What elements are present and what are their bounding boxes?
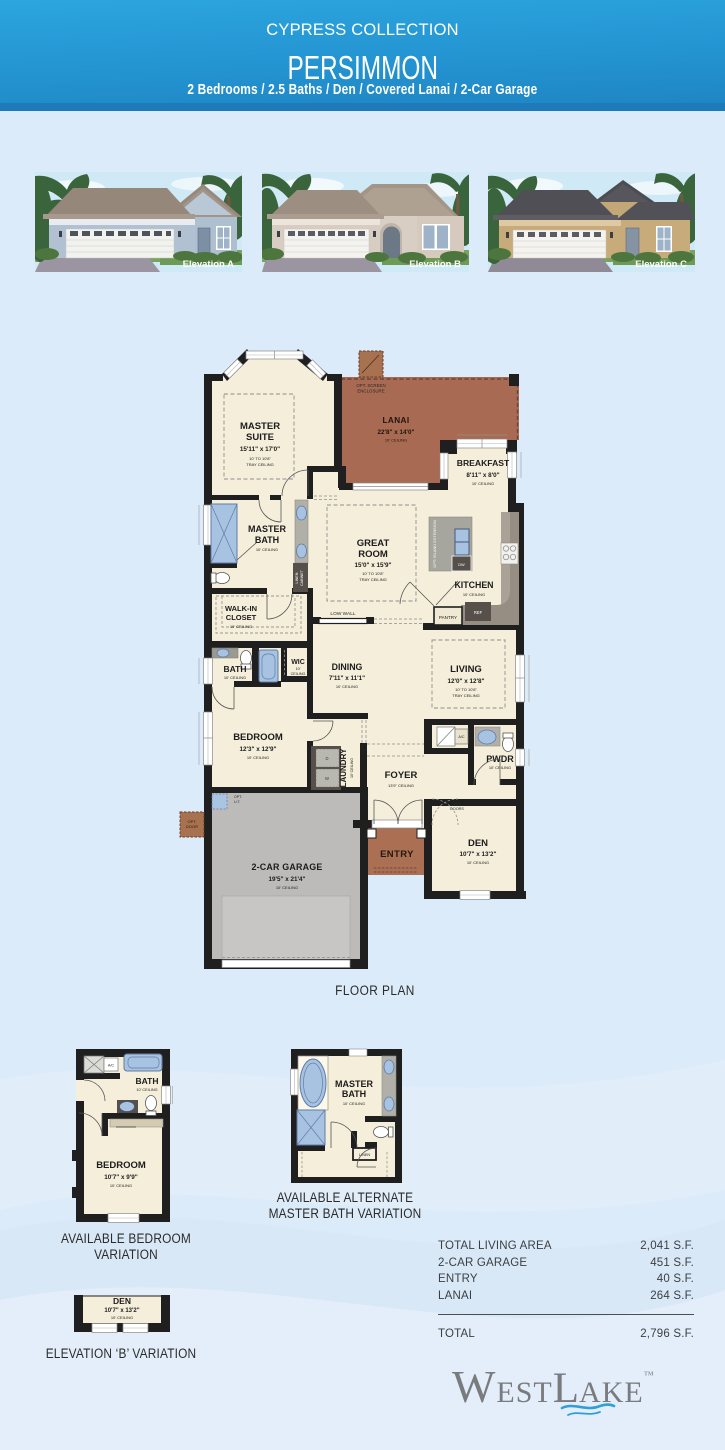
svg-text:MASTER: MASTER bbox=[335, 1079, 374, 1089]
svg-text:W: W bbox=[325, 776, 329, 781]
svg-text:Elevation C: Elevation C bbox=[635, 259, 687, 270]
svg-text:19'5" x 21'4": 19'5" x 21'4" bbox=[269, 876, 306, 883]
svg-text:U.T.: U.T. bbox=[234, 800, 241, 804]
svg-text:WIC: WIC bbox=[291, 659, 305, 666]
svg-text:2-CAR GARAGE: 2-CAR GARAGE bbox=[252, 862, 323, 872]
svg-text:WALK-IN: WALK-IN bbox=[225, 604, 257, 613]
svg-text:ENCLOSURE: ENCLOSURE bbox=[357, 389, 384, 394]
svg-text:OPT: ISLAND EXTENSION: OPT: ISLAND EXTENSION bbox=[432, 520, 437, 568]
svg-text:Elevation A: Elevation A bbox=[183, 259, 235, 270]
svg-text:OPT.: OPT. bbox=[234, 795, 242, 799]
svg-text:DOORS: DOORS bbox=[450, 807, 464, 811]
svg-text:DOOR: DOOR bbox=[186, 824, 198, 829]
svg-text:MASTER: MASTER bbox=[240, 421, 280, 432]
svg-text:DINING: DINING bbox=[332, 662, 363, 672]
svg-text:10': 10' bbox=[296, 667, 301, 671]
svg-text:CEILING: CEILING bbox=[291, 672, 306, 676]
svg-text:15'0" x 15'9": 15'0" x 15'9" bbox=[355, 562, 392, 569]
svg-text:10' CEILING: 10' CEILING bbox=[463, 592, 485, 597]
svg-text:10' CEILING: 10' CEILING bbox=[111, 1315, 133, 1320]
svg-text:15'11" x 17'0": 15'11" x 17'0" bbox=[240, 446, 280, 453]
svg-text:10' CEILING: 10' CEILING bbox=[136, 1088, 157, 1092]
svg-text:10' CEILING: 10' CEILING bbox=[110, 1183, 132, 1188]
svg-text:CLOSET: CLOSET bbox=[226, 613, 257, 622]
svg-text:10'7" x 13'2": 10'7" x 13'2" bbox=[104, 1308, 139, 1314]
svg-text:10' CEILING: 10' CEILING bbox=[336, 684, 358, 689]
svg-text:DW: DW bbox=[458, 562, 465, 567]
svg-text:FOYER: FOYER bbox=[385, 770, 418, 781]
svg-text:12'3" x 12'9": 12'3" x 12'9" bbox=[240, 746, 277, 753]
svg-text:REF: REF bbox=[474, 610, 483, 615]
svg-text:12'0" x 12'8": 12'0" x 12'8" bbox=[448, 678, 485, 685]
svg-text:10'7" x 9'9": 10'7" x 9'9" bbox=[104, 1174, 137, 1181]
svg-text:BATH: BATH bbox=[342, 1089, 366, 1099]
svg-text:10' CEILING: 10' CEILING bbox=[276, 885, 298, 890]
svg-text:10' CEILING: 10' CEILING bbox=[247, 755, 269, 760]
svg-text:LINEN: LINEN bbox=[295, 572, 299, 583]
svg-text:PANTRY: PANTRY bbox=[439, 615, 457, 620]
svg-text:Elevation B: Elevation B bbox=[409, 259, 461, 270]
svg-text:ENTRY: ENTRY bbox=[380, 849, 414, 860]
svg-text:BEDROOM: BEDROOM bbox=[233, 732, 283, 743]
svg-text:BATH: BATH bbox=[224, 664, 247, 674]
svg-text:OPT. SCREEN: OPT. SCREEN bbox=[356, 383, 385, 388]
svg-text:LAUNDRY: LAUNDRY bbox=[339, 748, 348, 787]
svg-text:ROOM: ROOM bbox=[358, 549, 388, 560]
svg-text:LOW WALL: LOW WALL bbox=[330, 611, 355, 617]
svg-text:DEN: DEN bbox=[468, 838, 488, 849]
svg-text:10'7" x 13'2": 10'7" x 13'2" bbox=[460, 851, 497, 858]
svg-text:10' CEILING: 10' CEILING bbox=[350, 758, 354, 778]
svg-text:BEDROOM: BEDROOM bbox=[96, 1160, 146, 1171]
svg-text:10' CEILING: 10' CEILING bbox=[472, 481, 494, 486]
svg-text:10' CEILING: 10' CEILING bbox=[230, 624, 252, 629]
svg-text:OPT.: OPT. bbox=[453, 802, 461, 806]
svg-text:TRAY CEILING: TRAY CEILING bbox=[452, 693, 479, 698]
svg-text:TRAY CEILING: TRAY CEILING bbox=[359, 577, 386, 582]
svg-text:7'11" x 11'1": 7'11" x 11'1" bbox=[329, 675, 365, 682]
svg-text:BATH: BATH bbox=[255, 535, 279, 545]
svg-text:10' TO 10'8": 10' TO 10'8" bbox=[455, 687, 477, 692]
svg-text:LANAI: LANAI bbox=[382, 416, 409, 425]
svg-text:DEN: DEN bbox=[113, 1296, 131, 1306]
svg-text:SUITE: SUITE bbox=[246, 432, 274, 443]
svg-text:10' CEILING: 10' CEILING bbox=[343, 1101, 365, 1106]
svg-text:10' TO 10'8": 10' TO 10'8" bbox=[362, 571, 384, 576]
svg-text:10' CEILING: 10' CEILING bbox=[467, 860, 489, 865]
svg-text:D: D bbox=[325, 756, 328, 761]
svg-text:MASTER: MASTER bbox=[248, 524, 287, 534]
svg-text:10' CEILING: 10' CEILING bbox=[256, 547, 278, 552]
svg-text:10' TO 10'8": 10' TO 10'8" bbox=[249, 456, 271, 461]
svg-text:GREAT: GREAT bbox=[357, 538, 390, 549]
svg-text:TRAY CEILING: TRAY CEILING bbox=[246, 462, 273, 467]
svg-text:A/C: A/C bbox=[458, 735, 464, 739]
svg-text:CABINET: CABINET bbox=[300, 569, 304, 586]
svg-text:BATH: BATH bbox=[136, 1076, 159, 1086]
svg-text:LIVING: LIVING bbox=[450, 664, 482, 675]
svg-text:KITCHEN: KITCHEN bbox=[454, 580, 493, 590]
svg-text:10' CEILING: 10' CEILING bbox=[224, 675, 246, 680]
svg-text:8'11" x 8'0": 8'11" x 8'0" bbox=[466, 472, 499, 479]
svg-text:10' CEILING: 10' CEILING bbox=[385, 438, 407, 443]
svg-text:A/C: A/C bbox=[108, 1064, 115, 1068]
svg-text:22'8" x 14'0": 22'8" x 14'0" bbox=[378, 429, 415, 436]
svg-text:BREAKFAST: BREAKFAST bbox=[457, 458, 510, 468]
svg-text:13'9" CEILING: 13'9" CEILING bbox=[388, 783, 414, 788]
